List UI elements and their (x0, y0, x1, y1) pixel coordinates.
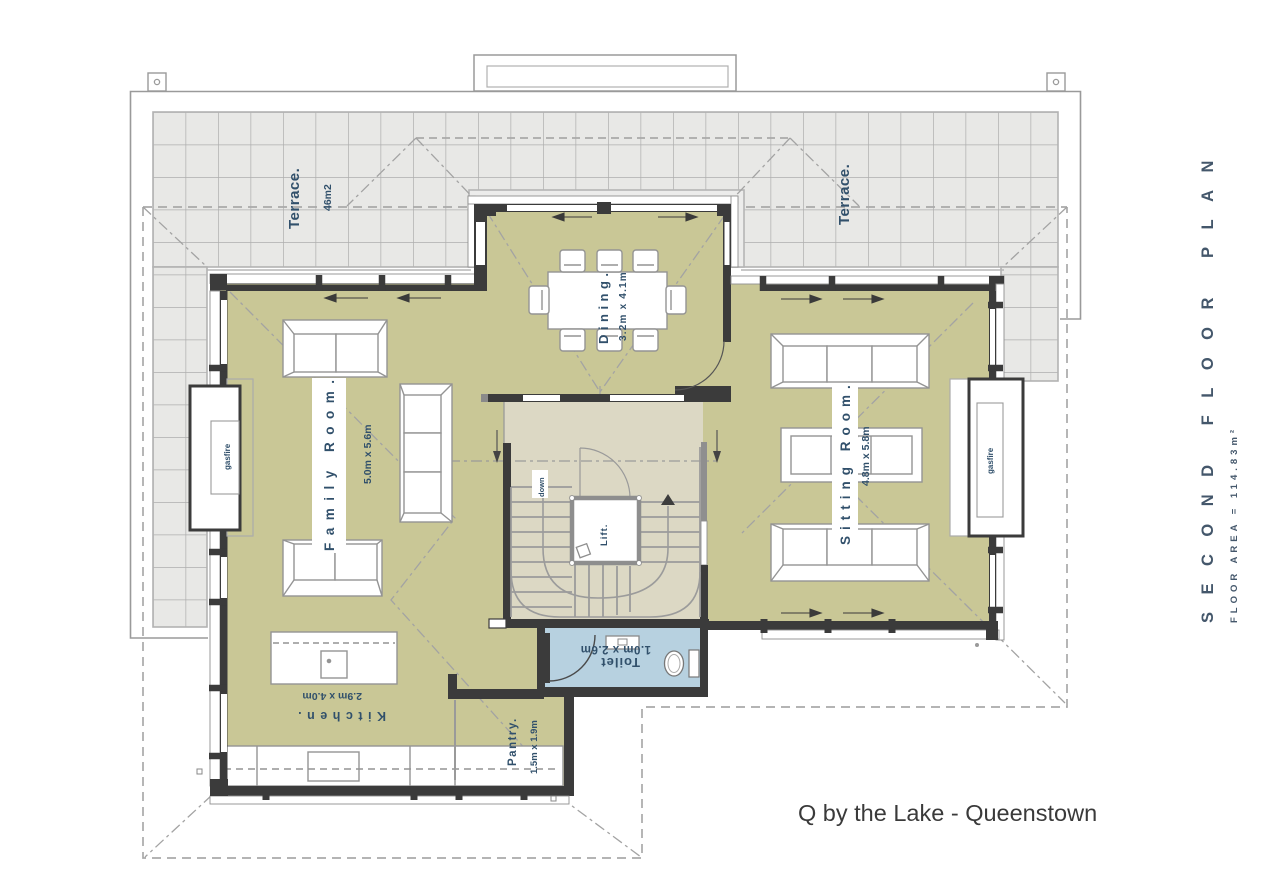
svg-text:Toilet: Toilet (600, 655, 640, 670)
svg-text:FLOOR AREA = 114.83m²: FLOOR AREA = 114.83m² (1229, 426, 1240, 623)
svg-text:gasfire: gasfire (986, 447, 995, 474)
svg-text:3.2m x 4.1m: 3.2m x 4.1m (618, 271, 629, 341)
svg-text:Pantry.: Pantry. (507, 717, 519, 766)
svg-text:Terrace.: Terrace. (836, 164, 853, 225)
svg-text:SECOND FLOOR PLAN: SECOND FLOOR PLAN (1199, 143, 1217, 623)
svg-text:Dining.: Dining. (596, 268, 611, 344)
svg-text:1.5m x 1.9m: 1.5m x 1.9m (529, 720, 540, 774)
svg-text:Kitchen.: Kitchen. (293, 709, 386, 723)
svg-text:2.9m x 4.0m: 2.9m x 4.0m (302, 690, 362, 702)
svg-text:Family Room.: Family Room. (322, 372, 337, 551)
svg-text:Terrace.: Terrace. (286, 168, 303, 229)
svg-text:down: down (537, 477, 546, 497)
svg-text:Q by the Lake - Queenstown: Q by the Lake - Queenstown (798, 800, 1097, 826)
svg-text:5.0m x 5.6m: 5.0m x 5.6m (362, 424, 374, 484)
svg-text:Sitting Room.: Sitting Room. (838, 379, 853, 545)
svg-text:Lift.: Lift. (599, 524, 610, 546)
svg-text:4.8m x 5.8m: 4.8m x 5.8m (860, 426, 872, 486)
svg-text:46m2: 46m2 (322, 184, 334, 211)
svg-text:gasfire: gasfire (223, 443, 232, 470)
svg-text:1.0m x 2.6m: 1.0m x 2.6m (580, 643, 651, 655)
